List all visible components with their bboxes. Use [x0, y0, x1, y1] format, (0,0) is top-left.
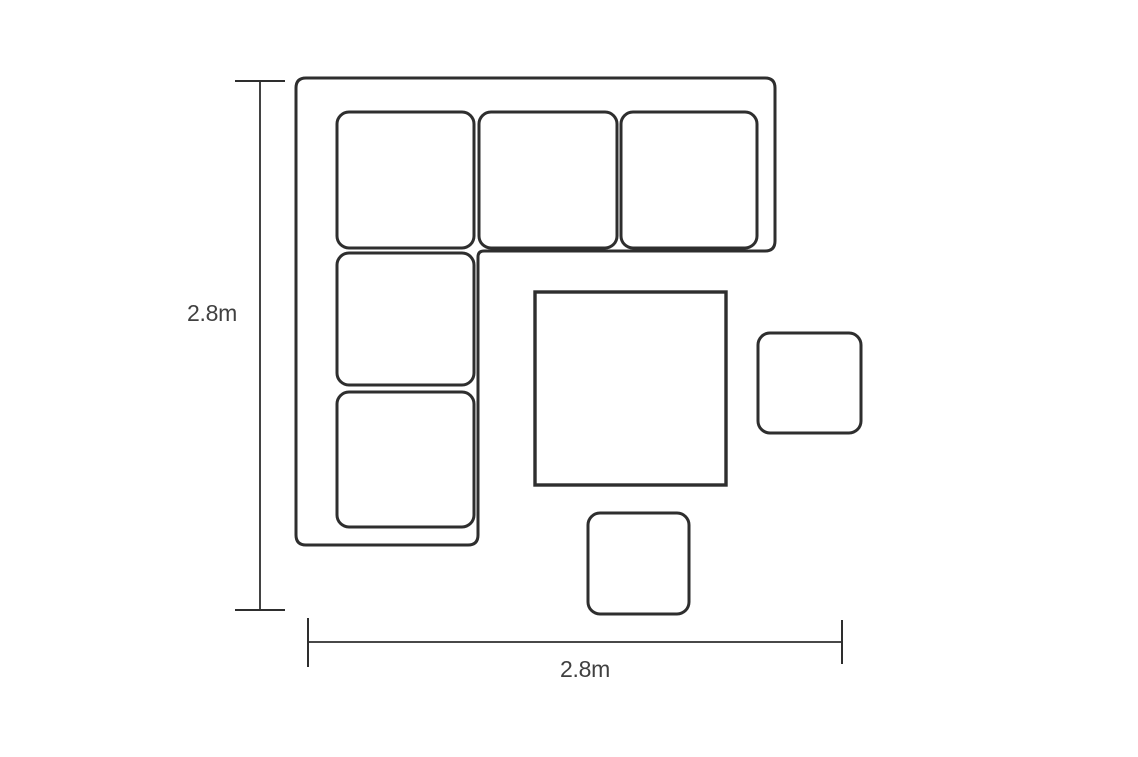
- sofa-cushion-left-middle: [337, 253, 474, 385]
- sofa-cushion-top-right: [621, 112, 757, 248]
- height-dimension: 2.8m: [187, 81, 285, 610]
- stool-right: [758, 333, 861, 433]
- floor-plan: 2.8m 2.8m: [0, 0, 1138, 757]
- height-dimension-label: 2.8m: [187, 300, 237, 326]
- floor-plan-canvas: 2.8m 2.8m: [0, 0, 1138, 757]
- width-dimension: 2.8m: [308, 618, 842, 682]
- width-dimension-label: 2.8m: [560, 656, 610, 682]
- sofa-cushion-left-bottom: [337, 392, 474, 527]
- sofa-cushion-top-middle: [479, 112, 617, 248]
- square-table: [535, 292, 726, 485]
- sofa-cushion-corner: [337, 112, 474, 248]
- stool-bottom: [588, 513, 689, 614]
